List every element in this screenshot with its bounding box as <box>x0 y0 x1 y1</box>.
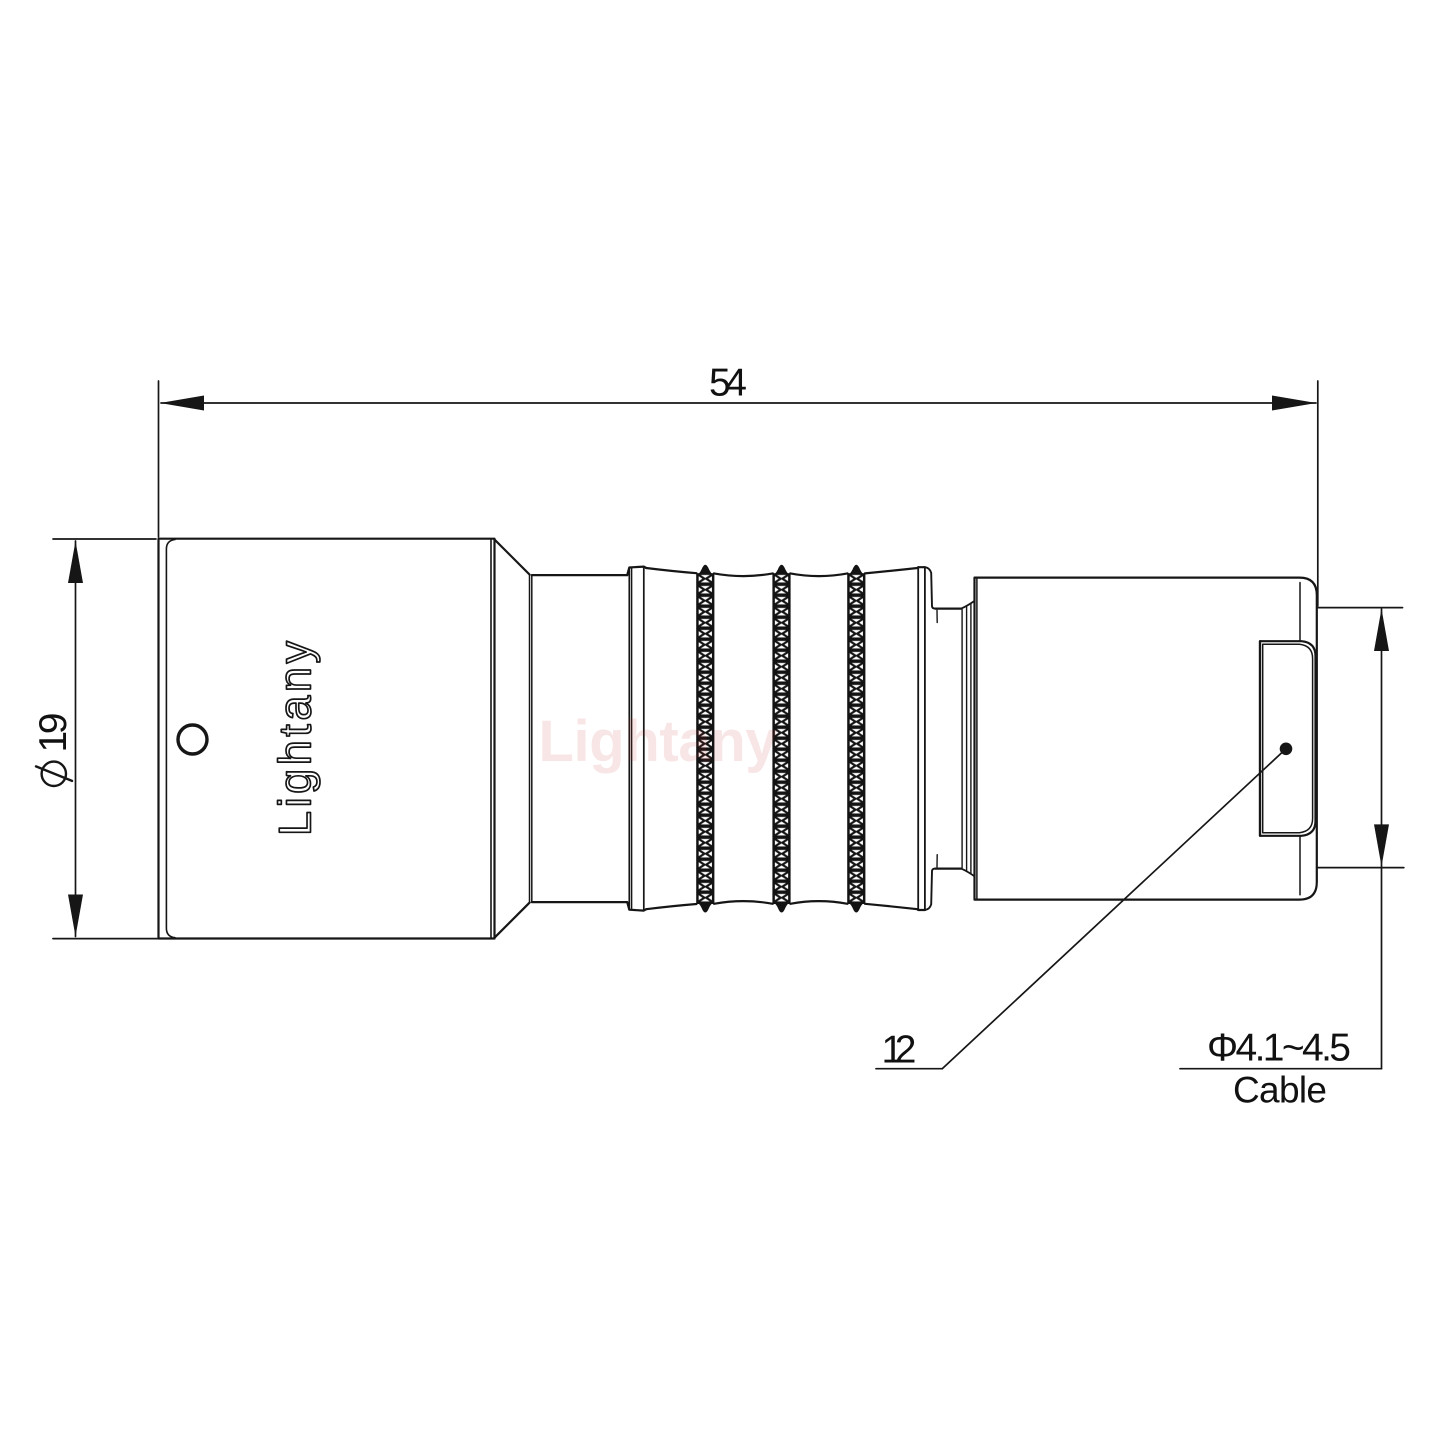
svg-text:Φ4.1~4.5: Φ4.1~4.5 <box>1207 1027 1351 1070</box>
svg-text:Lightany: Lightany <box>270 641 321 837</box>
svg-text:19: 19 <box>32 713 75 753</box>
svg-text:Lightany: Lightany <box>539 709 778 774</box>
svg-text:12: 12 <box>882 1029 917 1072</box>
svg-text:Cable: Cable <box>1233 1070 1327 1111</box>
svg-text:54: 54 <box>709 362 747 405</box>
